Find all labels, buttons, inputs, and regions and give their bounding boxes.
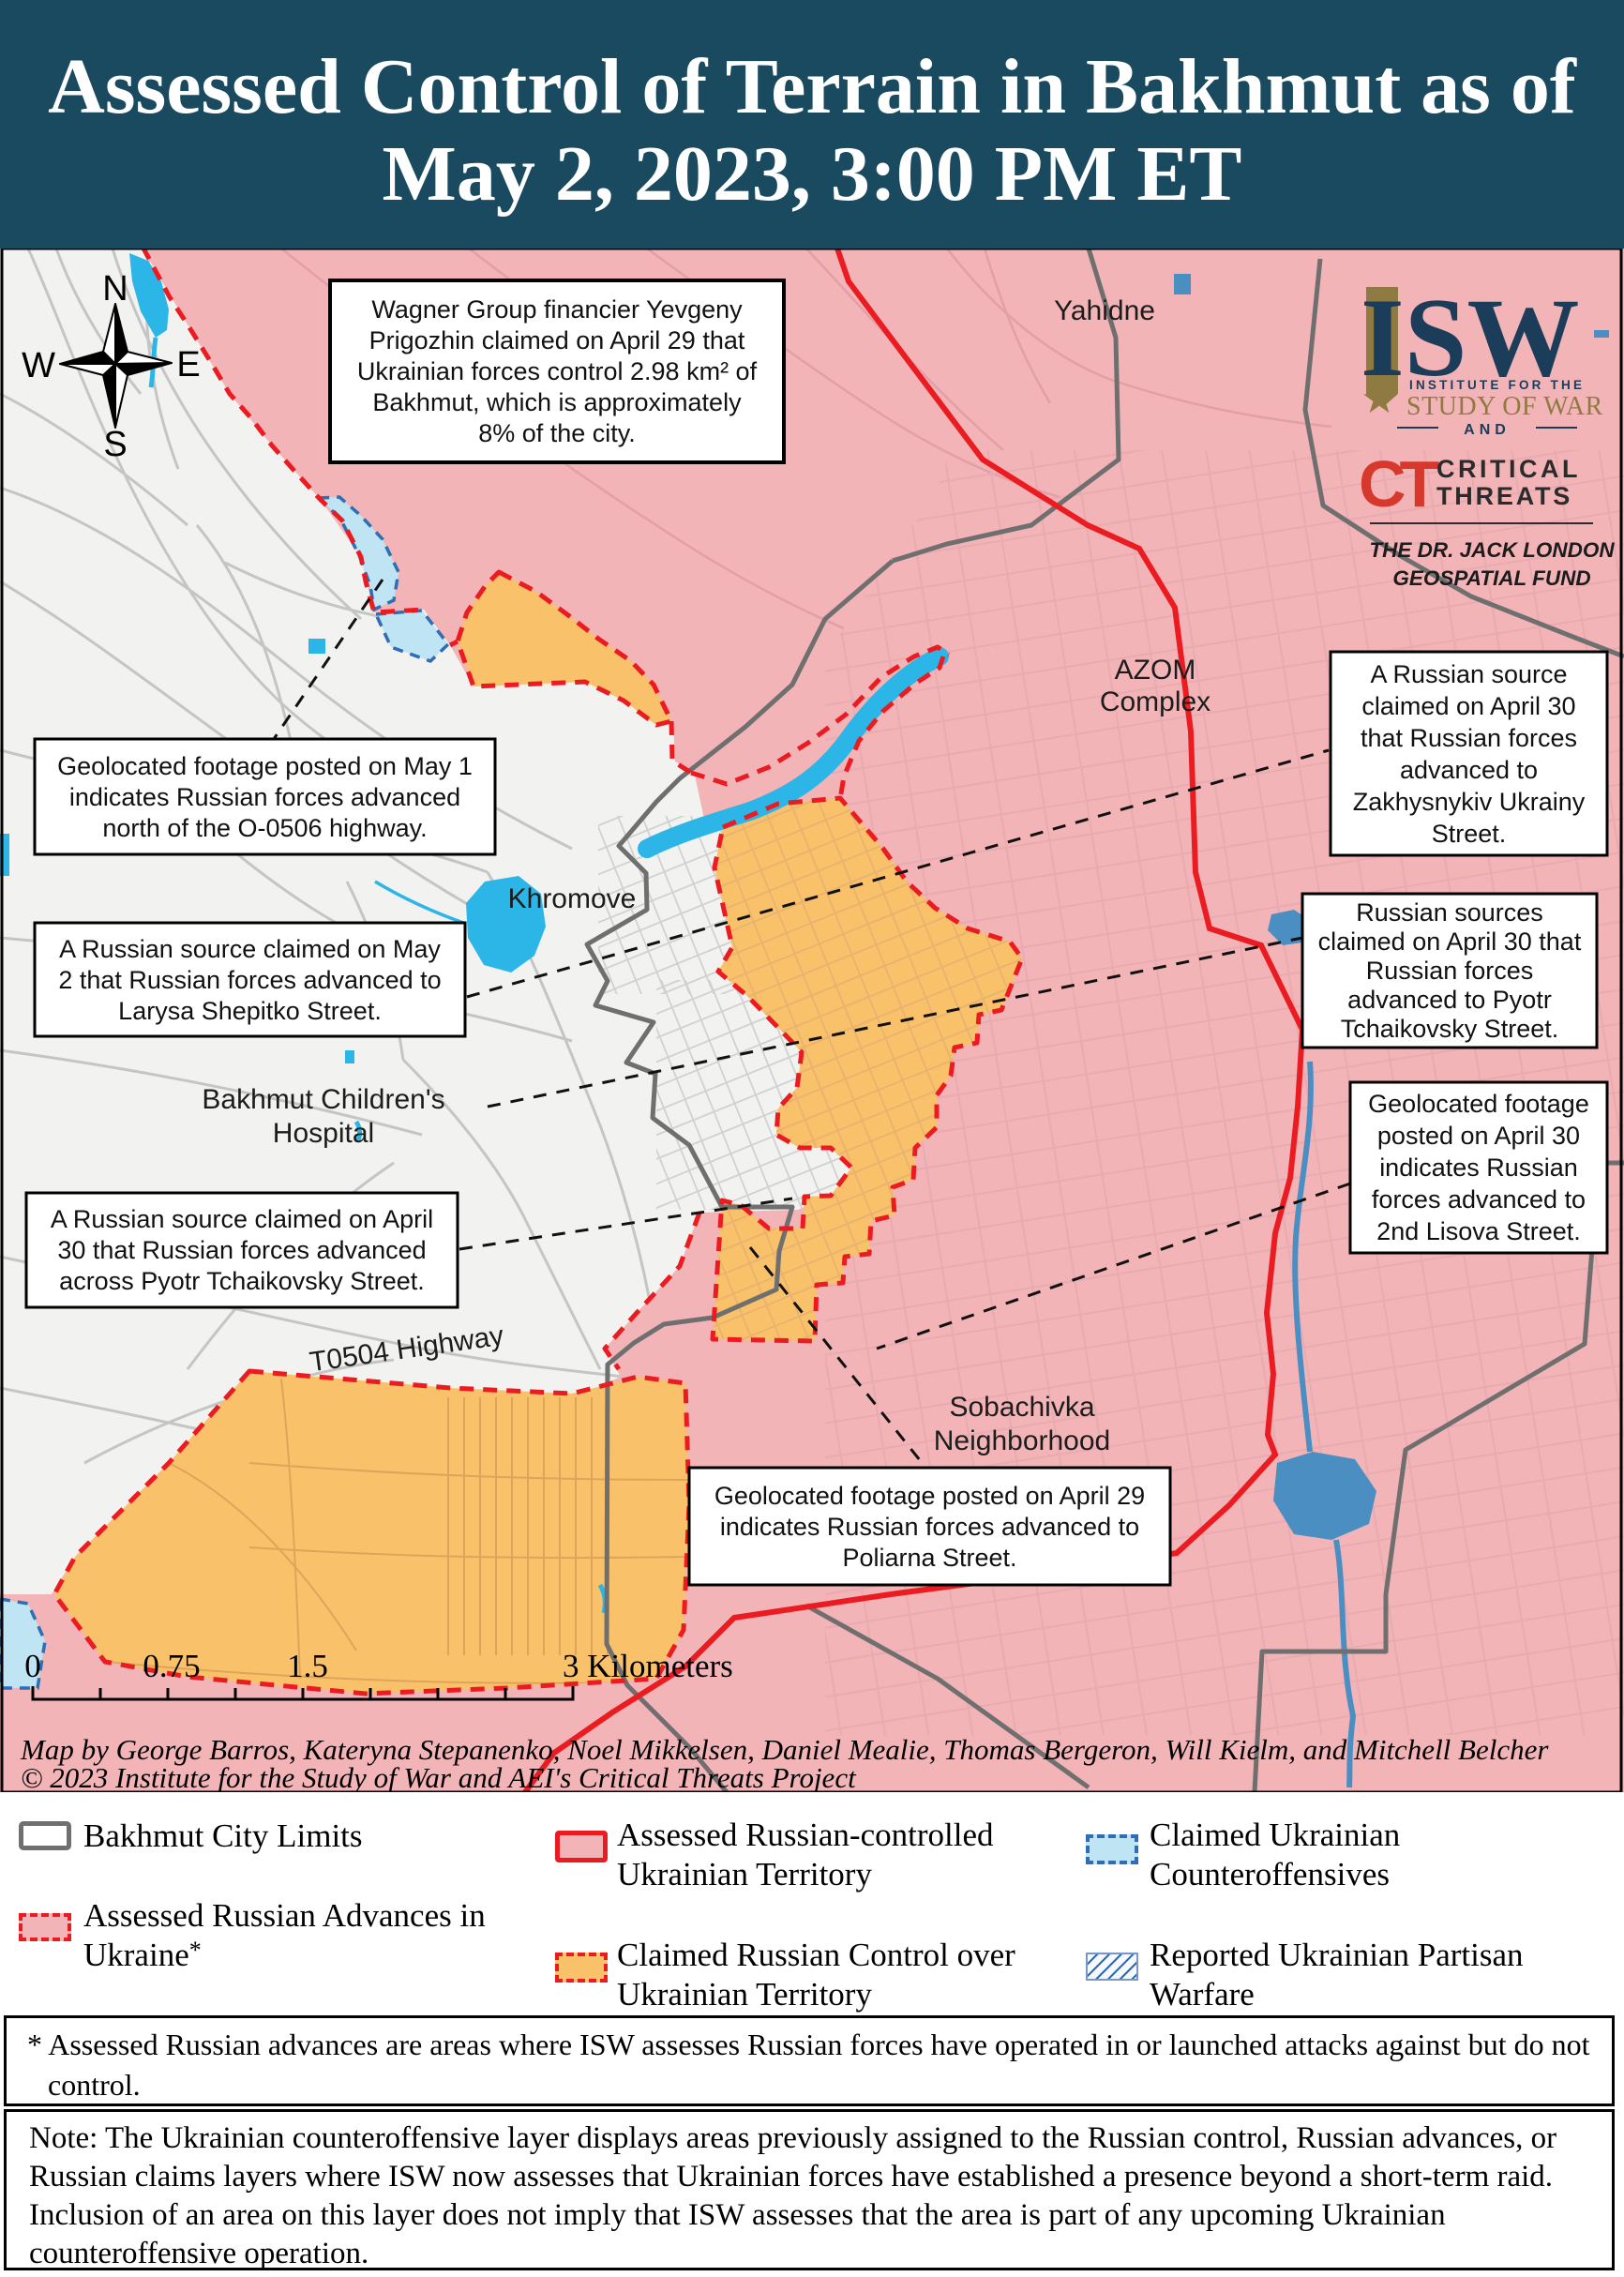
svg-text:A Russian source claimed on Ap: A Russian source claimed on April xyxy=(51,1205,433,1233)
svg-text:A Russian source: A Russian source xyxy=(1370,660,1567,688)
svg-text:Geolocated footage posted on M: Geolocated footage posted on May 1 xyxy=(57,752,473,780)
svg-text:GEOSPATIAL FUND: GEOSPATIAL FUND xyxy=(1392,566,1590,590)
svg-text:S: S xyxy=(103,425,127,464)
svg-text:3 Kilometers: 3 Kilometers xyxy=(563,1648,733,1684)
svg-text:across Pyotr Tchaikovsky Stree: across Pyotr Tchaikovsky Street. xyxy=(59,1267,425,1295)
svg-text:Sobachivka: Sobachivka xyxy=(949,1392,1094,1423)
svg-text:N: N xyxy=(102,269,128,309)
svg-text:indicates Russian: indicates Russian xyxy=(1379,1154,1578,1182)
svg-text:Russian sources: Russian sources xyxy=(1356,898,1543,927)
svg-text:AND: AND xyxy=(1464,422,1511,438)
svg-text:1.5: 1.5 xyxy=(287,1648,328,1684)
svg-text:claimed on April 30 that: claimed on April 30 that xyxy=(1318,927,1582,956)
svg-text:A Russian source claimed on Ma: A Russian source claimed on May xyxy=(59,935,441,963)
svg-text:30 that Russian forces advance: 30 that Russian forces advanced xyxy=(57,1236,426,1264)
svg-text:INSTITUTE FOR THE: INSTITUTE FOR THE xyxy=(1409,378,1585,392)
svg-text:Complex: Complex xyxy=(1100,686,1210,717)
svg-text:2 that Russian forces advanced: 2 that Russian forces advanced to xyxy=(58,966,441,994)
svg-text:indicates Russian forces advan: indicates Russian forces advanced xyxy=(69,783,460,811)
svg-text:advanced to: advanced to xyxy=(1400,756,1538,784)
svg-text:Geolocated footage: Geolocated footage xyxy=(1368,1090,1589,1118)
svg-text:forces advanced to: forces advanced to xyxy=(1372,1185,1586,1214)
svg-text:AZOM: AZOM xyxy=(1115,655,1196,686)
svg-text:Poliarna Street.: Poliarna Street. xyxy=(842,1544,1016,1572)
svg-text:Geolocated footage posted on A: Geolocated footage posted on April 29 xyxy=(714,1482,1145,1510)
svg-text:© 2023 Institute for the Study: © 2023 Institute for the Study of War an… xyxy=(21,1761,857,1794)
svg-text:Yahidne: Yahidne xyxy=(1054,295,1155,326)
svg-text:Wagner Group financier Yevgeny: Wagner Group financier Yevgeny xyxy=(371,295,743,324)
svg-text:Hospital: Hospital xyxy=(273,1118,374,1149)
svg-text:Bakhmut, which is approximatel: Bakhmut, which is approximately xyxy=(372,388,742,416)
svg-text:Street.: Street. xyxy=(1432,820,1507,848)
svg-text:Larysa Shepitko Street.: Larysa Shepitko Street. xyxy=(118,997,382,1025)
svg-text:Tchaikovsky Street.: Tchaikovsky Street. xyxy=(1341,1015,1559,1043)
svg-text:0: 0 xyxy=(24,1648,41,1684)
svg-text:THREATS: THREATS xyxy=(1436,482,1572,510)
svg-text:advanced to Pyotr: advanced to Pyotr xyxy=(1347,986,1552,1014)
svg-text:THE DR. JACK LONDON: THE DR. JACK LONDON xyxy=(1369,538,1615,562)
svg-text:0.75: 0.75 xyxy=(143,1648,200,1684)
svg-text:Khromove: Khromove xyxy=(508,883,637,914)
svg-text:STUDY OF WAR: STUDY OF WAR xyxy=(1406,392,1603,421)
svg-text:E: E xyxy=(176,345,200,385)
svg-text:Prigozhin claimed on April 29: Prigozhin claimed on April 29 that xyxy=(369,326,745,354)
svg-text:CT: CT xyxy=(1359,447,1439,520)
svg-text:that Russian forces: that Russian forces xyxy=(1361,724,1577,752)
svg-text:Ukrainian forces control 2.98: Ukrainian forces control 2.98 km² of xyxy=(357,357,758,385)
svg-text:north of the O-0506 highway.: north of the O-0506 highway. xyxy=(102,814,427,842)
svg-text:Bakhmut Children's: Bakhmut Children's xyxy=(202,1084,444,1115)
svg-text:W: W xyxy=(22,346,55,385)
svg-text:CRITICAL: CRITICAL xyxy=(1436,455,1581,483)
svg-text:2nd Lisova Street.: 2nd Lisova Street. xyxy=(1376,1217,1581,1245)
svg-text:★: ★ xyxy=(1361,376,1397,422)
svg-text:indicates Russian forces advan: indicates Russian forces advanced to xyxy=(720,1513,1139,1541)
svg-text:posted on April 30: posted on April 30 xyxy=(1377,1122,1580,1150)
svg-text:Neighborhood: Neighborhood xyxy=(934,1425,1110,1456)
svg-text:Zakhysnykiv Ukrainy: Zakhysnykiv Ukrainy xyxy=(1353,788,1586,816)
svg-text:claimed on April 30: claimed on April 30 xyxy=(1361,692,1575,720)
svg-text:8% of the city.: 8% of the city. xyxy=(478,419,636,447)
svg-text:Russian forces: Russian forces xyxy=(1366,957,1534,985)
